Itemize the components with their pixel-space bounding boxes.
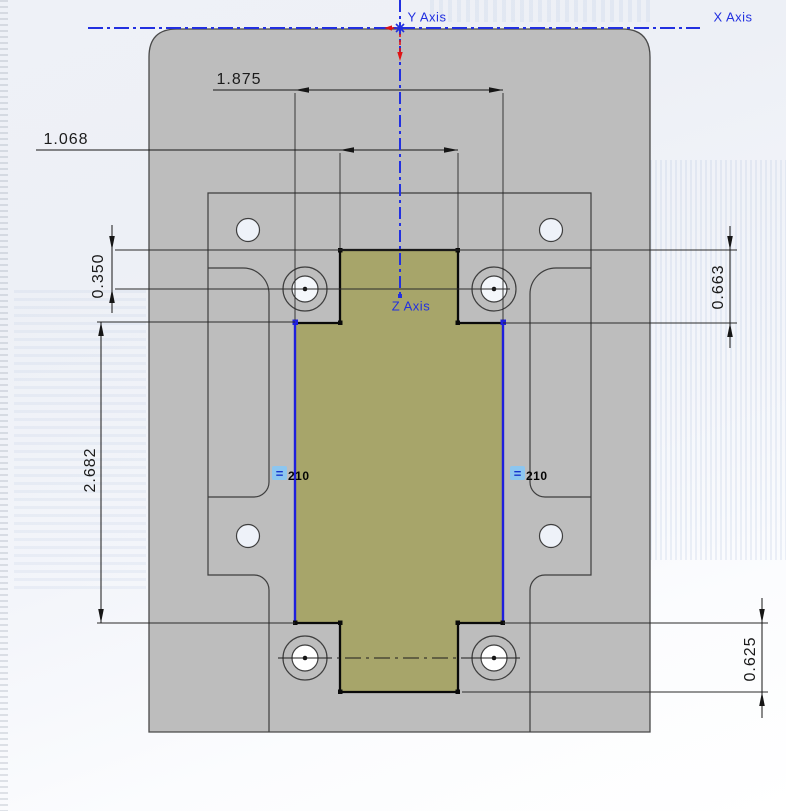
dim-label-hole-offset[interactable]: 0.350 [90,253,108,298]
clearance-hole[interactable] [237,219,260,242]
dim-label-top-step[interactable]: 0.663 [710,264,728,309]
dimension-0.663[interactable] [727,226,733,348]
cad-viewport: 1.875 1.068 0.350 0.663 2.682 0.625 X Ax… [0,0,786,811]
equal-relation-icon[interactable]: = [510,466,525,480]
dimension-0.625[interactable] [759,598,765,718]
dim-label-bottom-step[interactable]: 0.625 [742,636,760,681]
clearance-hole[interactable] [540,219,563,242]
dim-label-outer-width[interactable]: 1.875 [216,71,261,89]
equal-relation-icon[interactable]: = [272,466,287,480]
z-axis-label[interactable]: Z Axis [392,299,430,314]
relation-id[interactable]: 210 [526,469,548,483]
clearance-hole[interactable] [237,525,260,548]
relation-id[interactable]: 210 [288,469,310,483]
drawing-layer [0,0,786,811]
y-axis-label[interactable]: Y Axis [408,10,447,25]
dim-label-side-length[interactable]: 2.682 [82,447,100,492]
z-axis-marker[interactable] [398,294,402,298]
dim-label-notch-width[interactable]: 1.068 [43,131,88,149]
x-axis-label[interactable]: X Axis [713,10,752,25]
clearance-hole[interactable] [540,525,563,548]
dimension-0.350[interactable] [109,225,115,313]
